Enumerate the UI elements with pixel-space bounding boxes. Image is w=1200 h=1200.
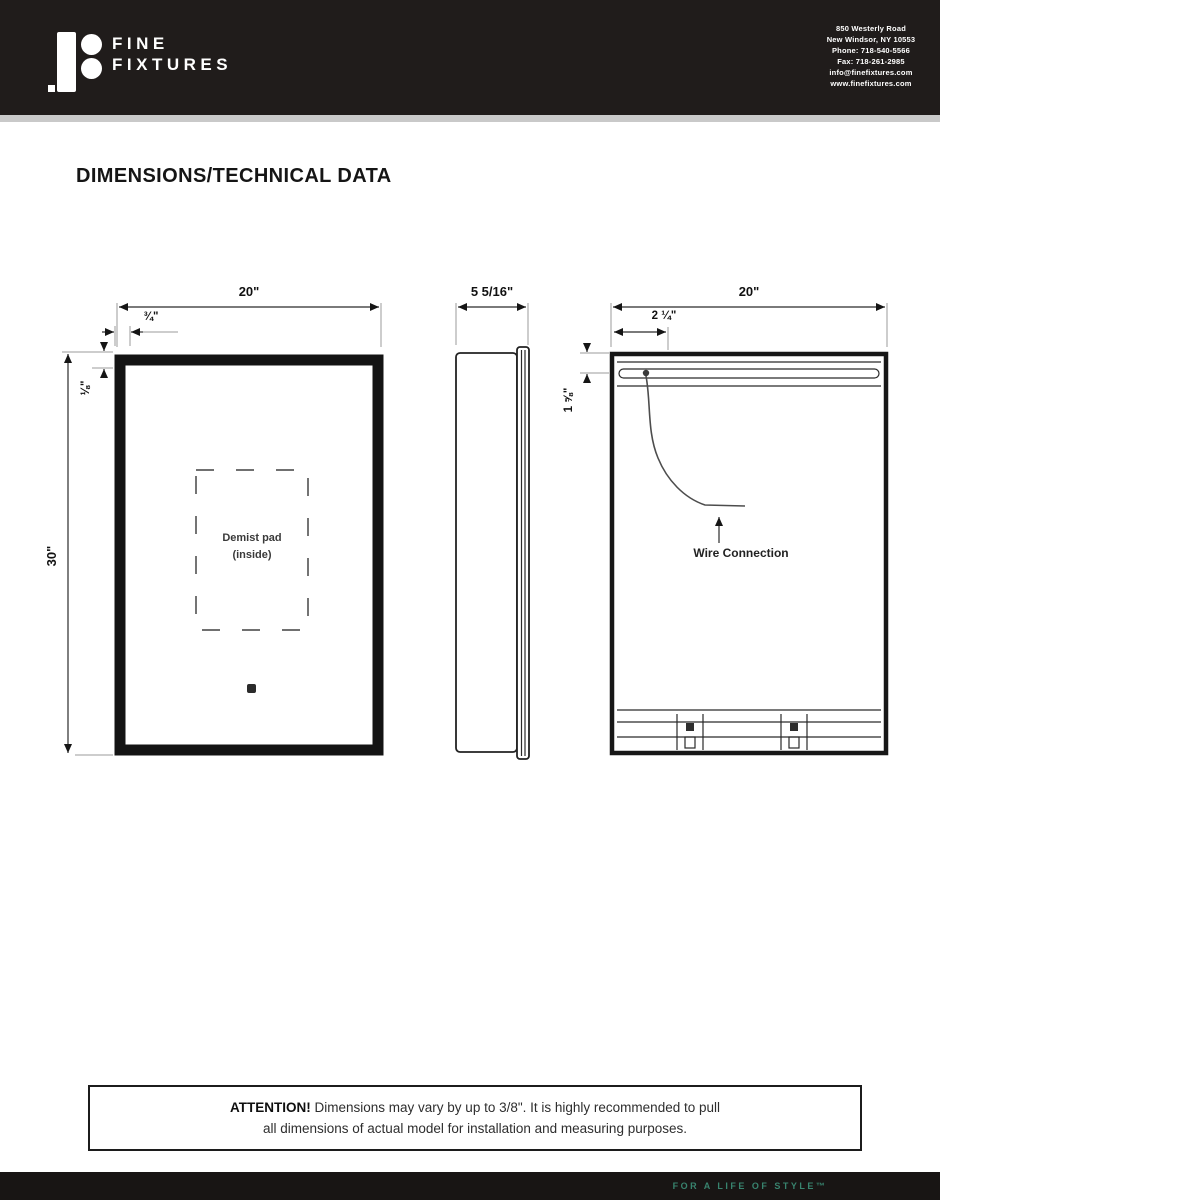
logo-dot-top bbox=[81, 34, 102, 55]
svg-text:2 ¼": 2 ¼" bbox=[652, 310, 677, 322]
address-line: 850 Westerly Road bbox=[810, 23, 932, 34]
header-bar: FINE FIXTURES 850 Westerly Road New Wind… bbox=[0, 0, 940, 122]
dim-front-inset: ⅛" bbox=[62, 342, 113, 396]
dim-front-height: 30" bbox=[44, 354, 113, 755]
svg-text:⅛": ⅛" bbox=[80, 380, 92, 395]
cabinet-door bbox=[517, 347, 529, 759]
attention-heading: ATTENTION! bbox=[230, 1100, 311, 1115]
sensor-button bbox=[247, 684, 256, 693]
footer-tagline: FOR A LIFE OF STYLE™ bbox=[560, 1172, 940, 1200]
attention-line1: ATTENTION! Dimensions may vary by up to … bbox=[90, 1097, 860, 1118]
side-view: 5 5/16" bbox=[456, 284, 529, 759]
page-title: DIMENSIONS/TECHNICAL DATA bbox=[76, 165, 392, 188]
demist-pad-label: Demist pad bbox=[222, 532, 281, 544]
cabinet-body bbox=[456, 353, 517, 752]
brand-name: FINE FIXTURES bbox=[112, 33, 232, 75]
wire-exit-point bbox=[643, 370, 649, 376]
svg-text:5 5/16": 5 5/16" bbox=[471, 284, 513, 299]
attention-box: ATTENTION! Dimensions may vary by up to … bbox=[88, 1085, 862, 1151]
address-line: New Windsor, NY 10553 bbox=[810, 34, 932, 45]
wire-connection-label: Wire Connection bbox=[693, 546, 788, 560]
address-line: www.finefixtures.com bbox=[810, 78, 932, 89]
svg-text:30": 30" bbox=[44, 546, 59, 567]
address-block: 850 Westerly Road New Windsor, NY 10553 … bbox=[810, 23, 932, 89]
logo-foot bbox=[48, 85, 55, 92]
attention-line2: all dimensions of actual model for insta… bbox=[90, 1118, 860, 1139]
address-line: Fax: 718-261-2985 bbox=[810, 56, 932, 67]
svg-text:20": 20" bbox=[739, 284, 760, 299]
svg-text:20": 20" bbox=[239, 284, 260, 299]
dim-back-rail-offset: 1 ⅝" bbox=[563, 343, 609, 412]
brand-line1: FINE bbox=[112, 33, 232, 54]
brand-line2: FIXTURES bbox=[112, 54, 232, 75]
technical-drawing: Demist pad (inside) 20" ¾" ⅛" bbox=[0, 255, 1200, 825]
logo-bar bbox=[57, 32, 76, 92]
address-line: info@finefixtures.com bbox=[810, 67, 932, 78]
attention-text1: Dimensions may vary by up to 3/8". It is… bbox=[315, 1100, 720, 1115]
front-view: Demist pad (inside) 20" ¾" ⅛" bbox=[44, 284, 381, 755]
logo-dot-bottom bbox=[81, 58, 102, 79]
address-line: Phone: 718-540-5566 bbox=[810, 45, 932, 56]
footer-bar: FOR A LIFE OF STYLE™ bbox=[0, 1172, 940, 1200]
fine-fixtures-logo-icon bbox=[55, 30, 105, 94]
back-view: Wire Connection 20" 2 ¼" bbox=[563, 284, 887, 753]
dim-side-depth: 5 5/16" bbox=[456, 284, 528, 345]
svg-text:¾": ¾" bbox=[143, 311, 158, 323]
svg-text:1 ⅝": 1 ⅝" bbox=[563, 388, 575, 413]
dim-front-frame: ¾" bbox=[102, 311, 178, 346]
dim-back-wire-offset: 2 ¼" bbox=[614, 310, 676, 350]
demist-pad-label2: (inside) bbox=[232, 549, 271, 561]
